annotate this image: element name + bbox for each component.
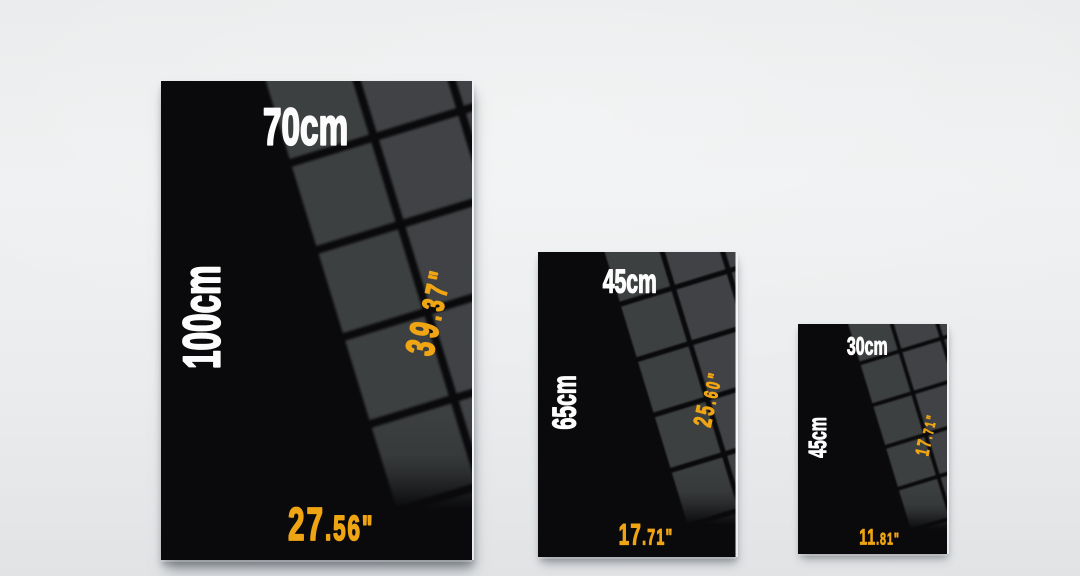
svg-text:70cm: 70cm [263,98,348,156]
svg-text:100cm: 100cm [174,265,232,369]
svg-text:65cm: 65cm [546,375,583,429]
svg-text:45cm: 45cm [804,417,832,458]
svg-text:45cm: 45cm [603,263,657,300]
svg-text:30cm: 30cm [847,332,888,360]
